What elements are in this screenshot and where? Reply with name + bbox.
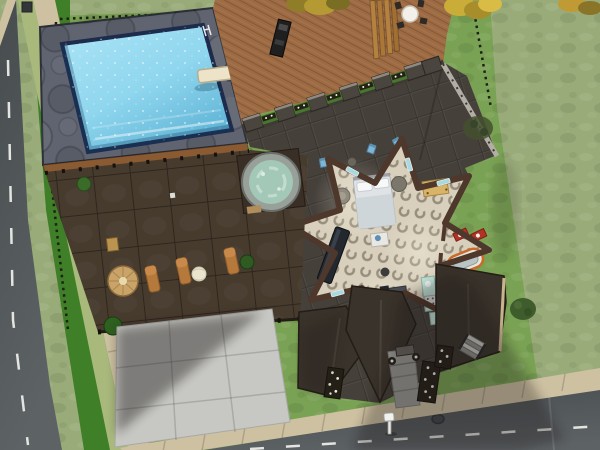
plant-pot[interactable] [348, 158, 357, 167]
side-chair[interactable] [381, 268, 390, 277]
deck-chair[interactable] [417, 0, 424, 7]
bathroom-wall [443, 223, 445, 241]
potted-plant[interactable] [77, 177, 91, 191]
lawn-bush[interactable] [510, 298, 536, 320]
deck-chair[interactable] [420, 17, 428, 24]
shadow-east-wall [491, 160, 519, 260]
deck-table[interactable] [402, 6, 418, 22]
crate[interactable] [106, 237, 119, 251]
trash-can[interactable] [22, 2, 32, 12]
umbrella-table[interactable] [108, 266, 138, 296]
shrub[interactable] [240, 255, 254, 269]
game-viewport [0, 0, 600, 450]
hot-tub[interactable] [237, 148, 306, 213]
dry-shrub[interactable] [463, 116, 493, 140]
pool-area [40, 8, 249, 173]
pouf-chair[interactable] [392, 177, 407, 192]
coffee-table[interactable] [370, 232, 388, 247]
small-white-item [170, 193, 176, 199]
